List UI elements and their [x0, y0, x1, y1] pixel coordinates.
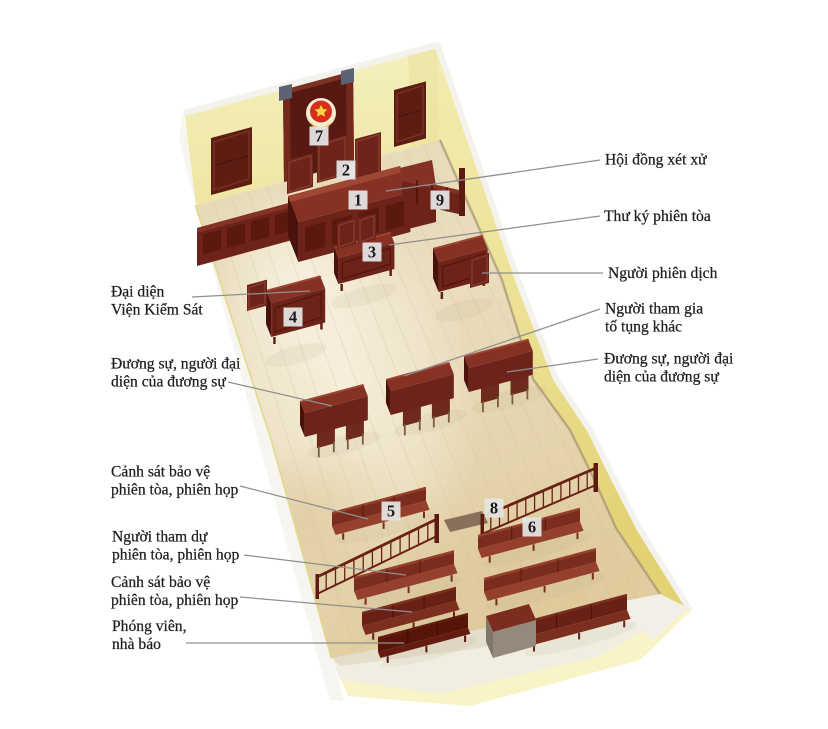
- svg-text:4: 4: [289, 308, 297, 327]
- svg-text:Người phiên dịch: Người phiên dịch: [608, 265, 718, 282]
- svg-text:3: 3: [368, 243, 376, 262]
- svg-text:Thư ký phiên tòa: Thư ký phiên tòa: [604, 208, 711, 225]
- svg-text:6: 6: [528, 518, 536, 537]
- svg-text:Đương sự, người đại: Đương sự, người đại: [604, 351, 734, 368]
- svg-text:5: 5: [387, 502, 395, 521]
- svg-text:Người tham dự: Người tham dự: [112, 529, 208, 546]
- svg-text:1: 1: [354, 191, 362, 210]
- svg-text:nhà báo: nhà báo: [112, 636, 161, 653]
- svg-text:Phóng viên,: Phóng viên,: [112, 618, 187, 635]
- svg-text:7: 7: [315, 127, 323, 146]
- svg-text:diện của đương sự: diện của đương sự: [604, 369, 719, 386]
- svg-text:8: 8: [490, 499, 498, 518]
- svg-text:Viện Kiểm Sát: Viện Kiểm Sát: [111, 302, 203, 319]
- svg-text:Cảnh sát bảo vệ: Cảnh sát bảo vệ: [111, 464, 210, 481]
- svg-text:phiên tòa, phiên họp: phiên tòa, phiên họp: [111, 592, 239, 609]
- svg-text:Người tham gia: Người tham gia: [605, 301, 703, 318]
- svg-text:phiên tòa, phiên họp: phiên tòa, phiên họp: [112, 547, 240, 564]
- svg-text:phiên tòa, phiên họp: phiên tòa, phiên họp: [111, 482, 239, 499]
- svg-text:Đại diện: Đại diện: [111, 284, 164, 301]
- svg-text:9: 9: [436, 191, 444, 210]
- svg-text:Cảnh sát bảo vệ: Cảnh sát bảo vệ: [111, 574, 210, 591]
- svg-text:diện của đương sự: diện của đương sự: [111, 374, 226, 391]
- svg-text:2: 2: [342, 161, 350, 180]
- svg-text:tố tụng khác: tố tụng khác: [605, 319, 682, 336]
- svg-text:Đương sự, người đại: Đương sự, người đại: [111, 356, 241, 373]
- svg-text:Hội đồng xét xử: Hội đồng xét xử: [605, 152, 707, 169]
